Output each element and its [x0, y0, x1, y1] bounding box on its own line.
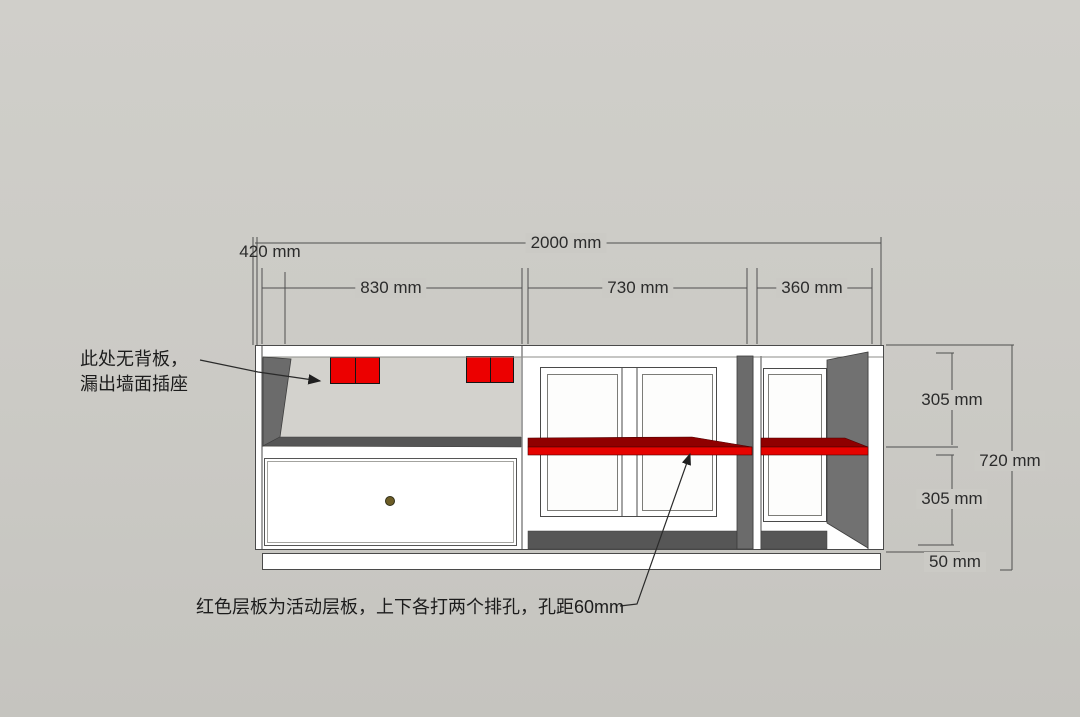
dim-lower-compartment-height: 305 mm — [916, 489, 987, 509]
dim-depth: 420 mm — [234, 242, 305, 262]
middle-compartment-floor — [528, 531, 737, 549]
dim-plinth-height: 50 mm — [924, 552, 986, 572]
dim-middle-section-width: 730 mm — [602, 278, 673, 298]
dim-upper-compartment-height: 305 mm — [916, 390, 987, 410]
adjustable-shelf-middle-top — [528, 437, 752, 447]
furniture-dimension-drawing: 2000 mm 420 mm 830 mm 730 mm 360 mm 305 … — [0, 0, 1080, 717]
left-side-panel-inner — [263, 357, 291, 446]
dim-right-section-width: 360 mm — [776, 278, 847, 298]
adjustable-shelf-right-front — [761, 447, 868, 455]
annotation-no-back-panel-line2: 漏出墙面插座 — [80, 372, 188, 397]
no-back-panel-leader-arrow — [200, 360, 320, 381]
left-compartment-floor — [263, 437, 521, 447]
annotation-no-back-panel-line1: 此处无背板， — [80, 347, 188, 372]
shelf-note-leader-arrow — [620, 454, 690, 606]
dim-overall-width: 2000 mm — [526, 233, 607, 253]
adjustable-shelf-middle-front — [528, 447, 752, 455]
right-compartment-floor — [761, 531, 827, 549]
dim-left-section-width: 830 mm — [355, 278, 426, 298]
annotation-shelf-note: 红色层板为活动层板，上下各打两个排孔，孔距60mm — [196, 595, 624, 620]
annotation-no-back-panel: 此处无背板， 漏出墙面插座 — [80, 347, 188, 397]
dim-overall-height: 720 mm — [974, 451, 1045, 471]
